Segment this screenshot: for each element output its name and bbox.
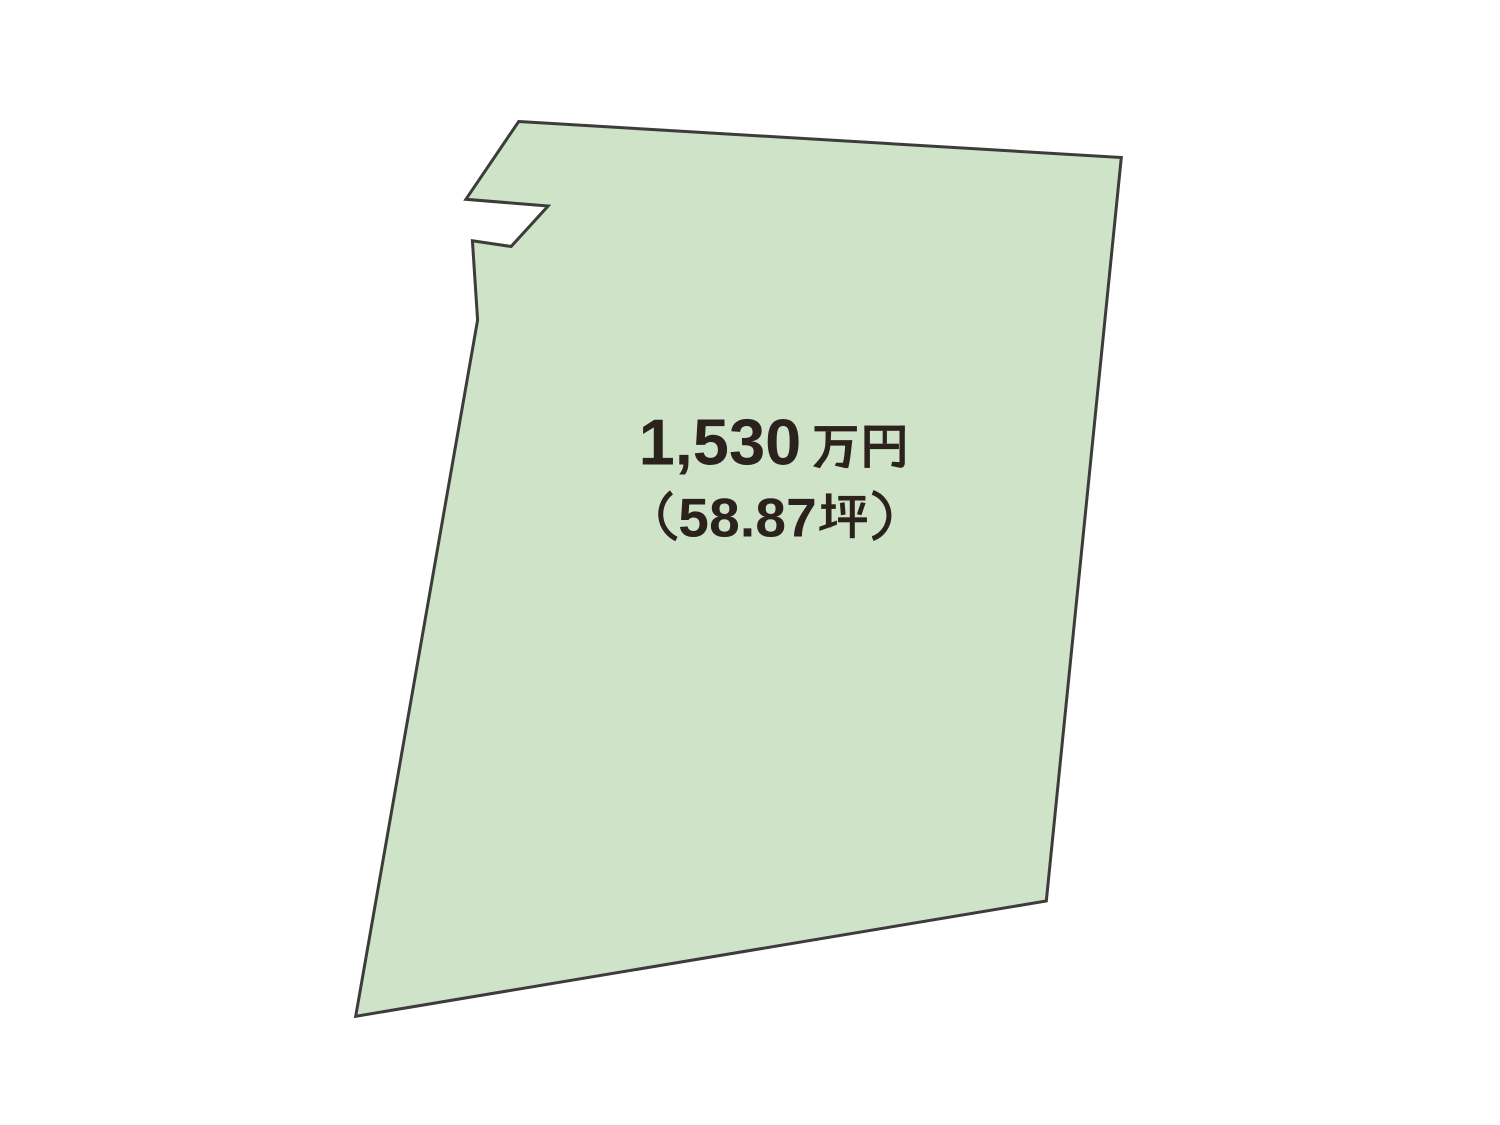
svg-text:58.87: 58.87: [678, 487, 817, 549]
svg-text:1,530: 1,530: [639, 405, 802, 478]
